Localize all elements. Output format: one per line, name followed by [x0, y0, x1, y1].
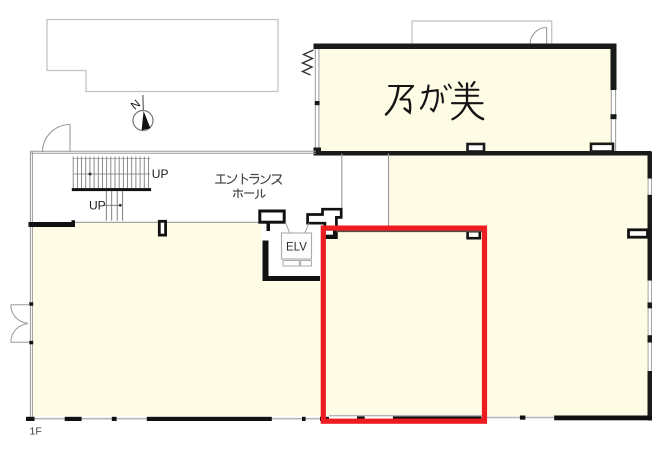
svg-text:1F: 1F — [30, 426, 42, 438]
svg-text:UP: UP — [152, 167, 169, 181]
svg-text:UP: UP — [89, 199, 106, 213]
svg-text:ELV: ELV — [286, 242, 307, 254]
